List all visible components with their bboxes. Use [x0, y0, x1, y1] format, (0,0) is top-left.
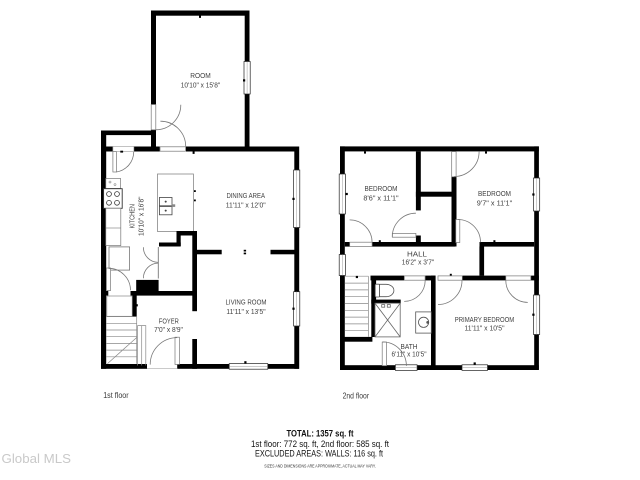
svg-text:10'10" x 15'8": 10'10" x 15'8"	[181, 80, 221, 89]
svg-text:11'11" x 10'5": 11'11" x 10'5"	[465, 323, 505, 332]
svg-text:ROOM: ROOM	[190, 71, 211, 80]
svg-text:TOTAL: 1357 sq. ft: TOTAL: 1357 sq. ft	[287, 429, 354, 439]
svg-text:8'6" x 11'1": 8'6" x 11'1"	[363, 193, 398, 202]
svg-text:6'11" x 10'5": 6'11" x 10'5"	[392, 349, 427, 358]
svg-text:9'7" x 11'1": 9'7" x 11'1"	[477, 199, 513, 208]
svg-text:LIVING ROOM: LIVING ROOM	[226, 297, 267, 306]
svg-text:KITCHEN: KITCHEN	[128, 204, 137, 229]
svg-text:2nd floor: 2nd floor	[343, 392, 370, 401]
svg-text:1st floor: 1st floor	[103, 391, 129, 400]
svg-text:16'2" x 3'7": 16'2" x 3'7"	[402, 258, 435, 267]
svg-text:10'10" x 16'8": 10'10" x 16'8"	[136, 196, 145, 236]
svg-text:BEDROOM: BEDROOM	[365, 184, 398, 193]
svg-text:11'11" x 13'5": 11'11" x 13'5"	[226, 307, 265, 316]
svg-text:EXCLUDED AREAS: WALLS: 116 sq.: EXCLUDED AREAS: WALLS: 116 sq. ft	[255, 448, 383, 458]
svg-text:DINING AREA: DINING AREA	[226, 191, 265, 200]
svg-text:11'11" x 12'0": 11'11" x 12'0"	[226, 201, 266, 210]
svg-text:7'0" x 8'9": 7'0" x 8'9"	[154, 325, 183, 334]
svg-text:Global MLS: Global MLS	[2, 452, 72, 466]
svg-text:SIZES AND DIMENSIONS ARE APPRO: SIZES AND DIMENSIONS ARE APPROXIMATE, AC…	[264, 464, 376, 470]
svg-text:BEDROOM: BEDROOM	[478, 189, 511, 198]
